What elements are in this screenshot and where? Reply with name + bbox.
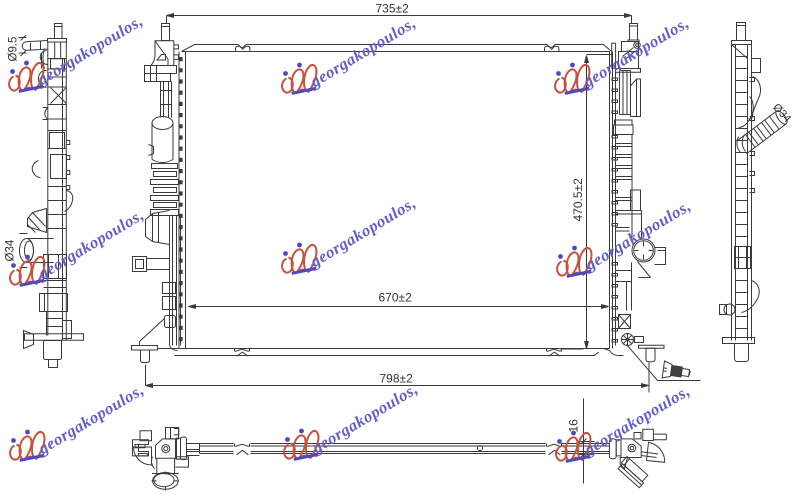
svg-text:Ø9.5: Ø9.5 <box>8 37 20 62</box>
svg-text:Ø34: Ø34 <box>5 239 17 261</box>
svg-text:470.5±2: 470.5±2 <box>571 178 585 222</box>
svg-text:735±2: 735±2 <box>376 2 410 16</box>
svg-text:670±2: 670±2 <box>379 291 413 305</box>
svg-text:16: 16 <box>567 419 581 433</box>
